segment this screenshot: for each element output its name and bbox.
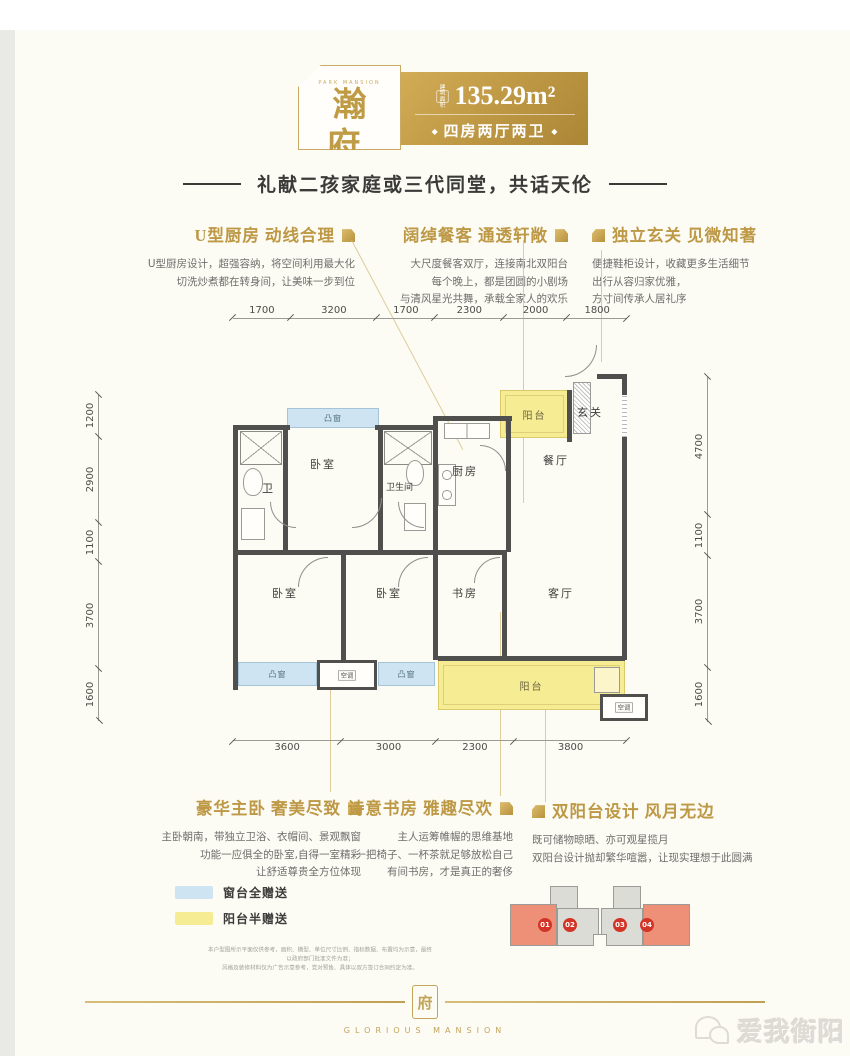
feature-entry-line: 便捷鞋柜设计，收藏更多生活细节 — [592, 256, 777, 273]
feature-balconies: 双阳台设计 风月无边 既可储物晾晒、亦可观星揽月 双阳台设计抛却繁华喧嚣，让现实… — [532, 798, 777, 867]
floorplan-poster: PARK MANSION 瀚府 3#01/04户型 建筑面积 135.29m² … — [0, 0, 850, 1056]
ac-label: 空调 — [615, 702, 633, 712]
feature-dining-line: 大尺度餐客双厅，连接南北双阳台 — [378, 256, 568, 273]
tagline: 礼献二孩家庭或三代同堂，共话天伦 — [0, 170, 850, 197]
top-white-strip — [0, 0, 850, 30]
wall — [233, 425, 238, 665]
door-arc — [480, 445, 506, 471]
feature-master-title: 豪华主卧 奢美尽致 — [196, 795, 341, 822]
dim-value: 1200 — [86, 403, 97, 428]
feature-dining-title: 阔绰餐客 通透轩敞 — [403, 222, 548, 249]
dim-line-bottom: 3600 3000 2300 3800 — [233, 740, 627, 755]
dot-left: ◆ — [432, 127, 438, 136]
plan-name-badge: PARK MANSION 瀚府 3#01/04户型 — [298, 65, 401, 150]
dim-value: 1600 — [86, 682, 97, 707]
feature-master-line: 让舒适尊贵全方位体现 — [128, 864, 361, 881]
dim-value: 3000 — [376, 742, 401, 753]
bay-window-label: 凸窗 — [324, 413, 342, 424]
dim-value: 3200 — [321, 305, 346, 316]
washbasin — [241, 508, 265, 540]
unit-badge-02: 02 — [563, 918, 577, 932]
divider — [415, 114, 575, 115]
wall — [378, 430, 383, 550]
room-label-bedroom-southwest: 卧室 — [272, 585, 298, 601]
layout-text: 四房两厅两卫 — [443, 124, 545, 140]
feature-study: 诗意书房 雅趣尽欢 主人运筹帷幄的思维基地 一把椅子、一杯茶就足够放松自己 有间… — [333, 795, 513, 881]
ac-platform: 空调 — [600, 694, 648, 721]
dim-value: 2000 — [523, 305, 548, 316]
keyplan-notch — [593, 934, 607, 946]
wall — [438, 656, 625, 661]
room-label-living: 客厅 — [548, 585, 574, 601]
wall — [233, 660, 238, 690]
tagline-text: 礼献二孩家庭或三代同堂，共话天伦 — [257, 170, 593, 197]
area-seal: 建筑面积 — [436, 90, 448, 102]
feature-kitchen-title: U型厨房 动线合理 — [194, 222, 335, 249]
gold-marker-icon — [342, 229, 355, 242]
brand-emblem: 府 — [412, 985, 438, 1019]
feature-master-line: 功能一应俱全的卧室,自得一室精彩 — [128, 847, 361, 864]
watermark: 爱我衡阳 — [695, 1012, 845, 1049]
room-label-bedroom-south: 卧室 — [376, 585, 402, 601]
feature-entry-line: 出行从容归家优雅， — [592, 274, 777, 291]
feature-study-line: 一把椅子、一杯茶就足够放松自己 — [333, 847, 513, 864]
area-value: 135.29m² — [455, 81, 556, 111]
feature-master-bedroom: 豪华主卧 奢美尽致 主卧朝南，带独立卫浴、衣帽间、景观飘窗 功能一应俱全的卧室,… — [128, 795, 361, 881]
wall — [506, 416, 511, 552]
dim-value: 2300 — [462, 742, 487, 753]
wall — [375, 425, 438, 430]
dim-value: 2300 — [457, 305, 482, 316]
dim-value: 2900 — [86, 467, 97, 492]
feature-kitchen-line: 切洗炒煮都在转身间，让美味一步到位 — [138, 274, 355, 291]
ac-platform: 空调 — [317, 660, 377, 690]
legend-item-window: 窗台全赠送 — [175, 884, 288, 901]
wardrobe — [384, 431, 432, 465]
room-label-dining: 餐厅 — [543, 452, 569, 468]
wall — [233, 550, 507, 555]
bay-window-southwest: 凸窗 — [238, 662, 317, 686]
legend: 窗台全赠送 阳台半赠送 — [175, 884, 288, 936]
legend-label: 阳台半赠送 — [223, 910, 288, 927]
door-arc — [398, 502, 424, 528]
dim-value: 3600 — [274, 742, 299, 753]
feature-study-line: 主人运筹帷幄的思维基地 — [333, 829, 513, 846]
room-label-entry: 玄关 — [577, 404, 603, 420]
room-label-bathroom: 卫生间 — [386, 480, 413, 493]
feature-study-title: 诗意书房 雅趣尽欢 — [348, 795, 493, 822]
feature-balconies-title: 双阳台设计 风月无边 — [552, 798, 715, 825]
balcony-utility-box — [594, 667, 620, 693]
brand-logo-text: GLORIOUS MANSION — [325, 1026, 525, 1035]
dim-value: 1700 — [249, 305, 274, 316]
disclaimer-line: 风格及装修材料仅为广告示意参考，党对预售、具体以双方签订合同约定为准。 — [208, 964, 432, 973]
dim-value: 1100 — [86, 530, 97, 555]
feature-study-line: 有间书房，才是真正的奢侈 — [333, 864, 513, 881]
legend-swatch-yellow — [175, 912, 213, 925]
door-arc — [474, 557, 500, 583]
door-arc — [270, 502, 296, 528]
legend-item-balcony: 阳台半赠送 — [175, 910, 288, 927]
feature-dining-line: 每个晚上，都是团圆的小剧场 — [378, 274, 568, 291]
room-label-bedroom-north: 卧室 — [310, 456, 336, 472]
wardrobe — [240, 431, 282, 465]
feature-master-line: 主卧朝南，带独立卫浴、衣帽间、景观飘窗 — [128, 829, 361, 846]
wall — [233, 425, 290, 430]
gold-marker-icon — [500, 802, 513, 815]
room-label-study: 书房 — [452, 585, 478, 601]
toilet — [243, 468, 263, 496]
door-arc — [398, 557, 428, 587]
feature-entry-title: 独立玄关 见微知著 — [612, 222, 757, 249]
wall — [433, 416, 512, 421]
dim-line-right: 4700 1100 3700 1600 — [693, 377, 708, 722]
wall — [283, 430, 288, 550]
feature-balconies-line: 双阳台设计抛却繁华喧嚣，让现实理想于此圆满 — [532, 850, 777, 867]
dim-line-top: 1700 3200 1700 2300 2000 1800 — [233, 304, 627, 319]
unit-badge-03: 03 — [613, 918, 627, 932]
bay-window-label: 凸窗 — [398, 669, 416, 680]
leader-line — [523, 240, 524, 503]
dot-right: ◆ — [551, 127, 557, 136]
gold-marker-icon — [555, 229, 568, 242]
window-strip — [622, 395, 627, 437]
tagline-bar-right — [609, 183, 667, 185]
room-label-bath: 卫 — [262, 480, 275, 496]
dim-value: 1100 — [695, 523, 706, 548]
feature-balconies-line: 既可储物晾晒、亦可观星揽月 — [532, 832, 777, 849]
dim-line-left: 1200 2900 1100 3700 1600 — [84, 395, 99, 721]
building-keyplan: 01 02 03 04 — [505, 878, 695, 953]
tagline-bar-left — [183, 183, 241, 185]
keyplan-top-tab — [613, 886, 641, 910]
ac-label: 空调 — [338, 670, 356, 680]
room-label-kitchen: 厨房 — [452, 463, 478, 479]
bay-window-south: 凸窗 — [378, 662, 435, 686]
chat-bubbles-icon — [695, 1016, 731, 1046]
gold-marker-icon — [532, 805, 545, 818]
unit-badge-01: 01 — [538, 918, 552, 932]
watermark-text: 爱我衡阳 — [737, 1012, 845, 1049]
disclaimer-line: 本户型图所示平面仅供参考，面积、模型、单位尺寸比例、指标数据、布置均为示意，最终… — [208, 946, 432, 964]
dim-value: 1800 — [584, 305, 609, 316]
legend-swatch-blue — [175, 886, 213, 899]
footer-rule-left — [85, 1001, 405, 1003]
wall — [341, 555, 346, 662]
feature-entry: 独立玄关 见微知著 便捷鞋柜设计，收藏更多生活细节 出行从容归家优雅， 方寸间传… — [592, 222, 777, 308]
door-arc — [565, 345, 597, 377]
footer-rule-right — [445, 1001, 765, 1003]
dim-value: 3700 — [86, 603, 97, 628]
disclaimer: 本户型图所示平面仅供参考，面积、模型、单位尺寸比例、指标数据、布置均为示意，最终… — [120, 946, 520, 994]
dim-value: 1700 — [393, 305, 418, 316]
feature-dining: 阔绰餐客 通透轩敞 大尺度餐客双厅，连接南北双阳台 每个晚上，都是团圆的小剧场 … — [378, 222, 568, 308]
feature-kitchen: U型厨房 动线合理 U型厨房设计，超强容纳，将空间利用最大化 切洗炒煮都在转身间… — [138, 222, 355, 291]
dim-value: 1600 — [695, 682, 706, 707]
dim-value: 3700 — [695, 599, 706, 624]
feature-kitchen-line: U型厨房设计，超强容纳，将空间利用最大化 — [138, 256, 355, 273]
unit-badge-04: 04 — [640, 918, 654, 932]
balcony-inner-line — [505, 395, 564, 433]
gold-marker-icon — [592, 229, 605, 242]
legend-label: 窗台全赠送 — [223, 884, 288, 901]
wall — [567, 390, 572, 442]
bay-window-north: 凸窗 — [287, 408, 379, 428]
bay-window-label: 凸窗 — [269, 669, 287, 680]
dim-value: 4700 — [695, 433, 706, 458]
layout-text-row: ◆ 四房两厅两卫 ◆ — [401, 120, 588, 141]
wall — [597, 374, 622, 379]
kitchen-sink — [444, 423, 490, 439]
dim-value: 3800 — [558, 742, 583, 753]
plan-name: 瀚府 — [299, 86, 400, 168]
wall — [433, 555, 438, 660]
wall — [502, 555, 507, 658]
door-arc — [298, 557, 328, 587]
area-badge: 建筑面积 135.29m² ◆ 四房两厅两卫 ◆ — [401, 72, 588, 145]
